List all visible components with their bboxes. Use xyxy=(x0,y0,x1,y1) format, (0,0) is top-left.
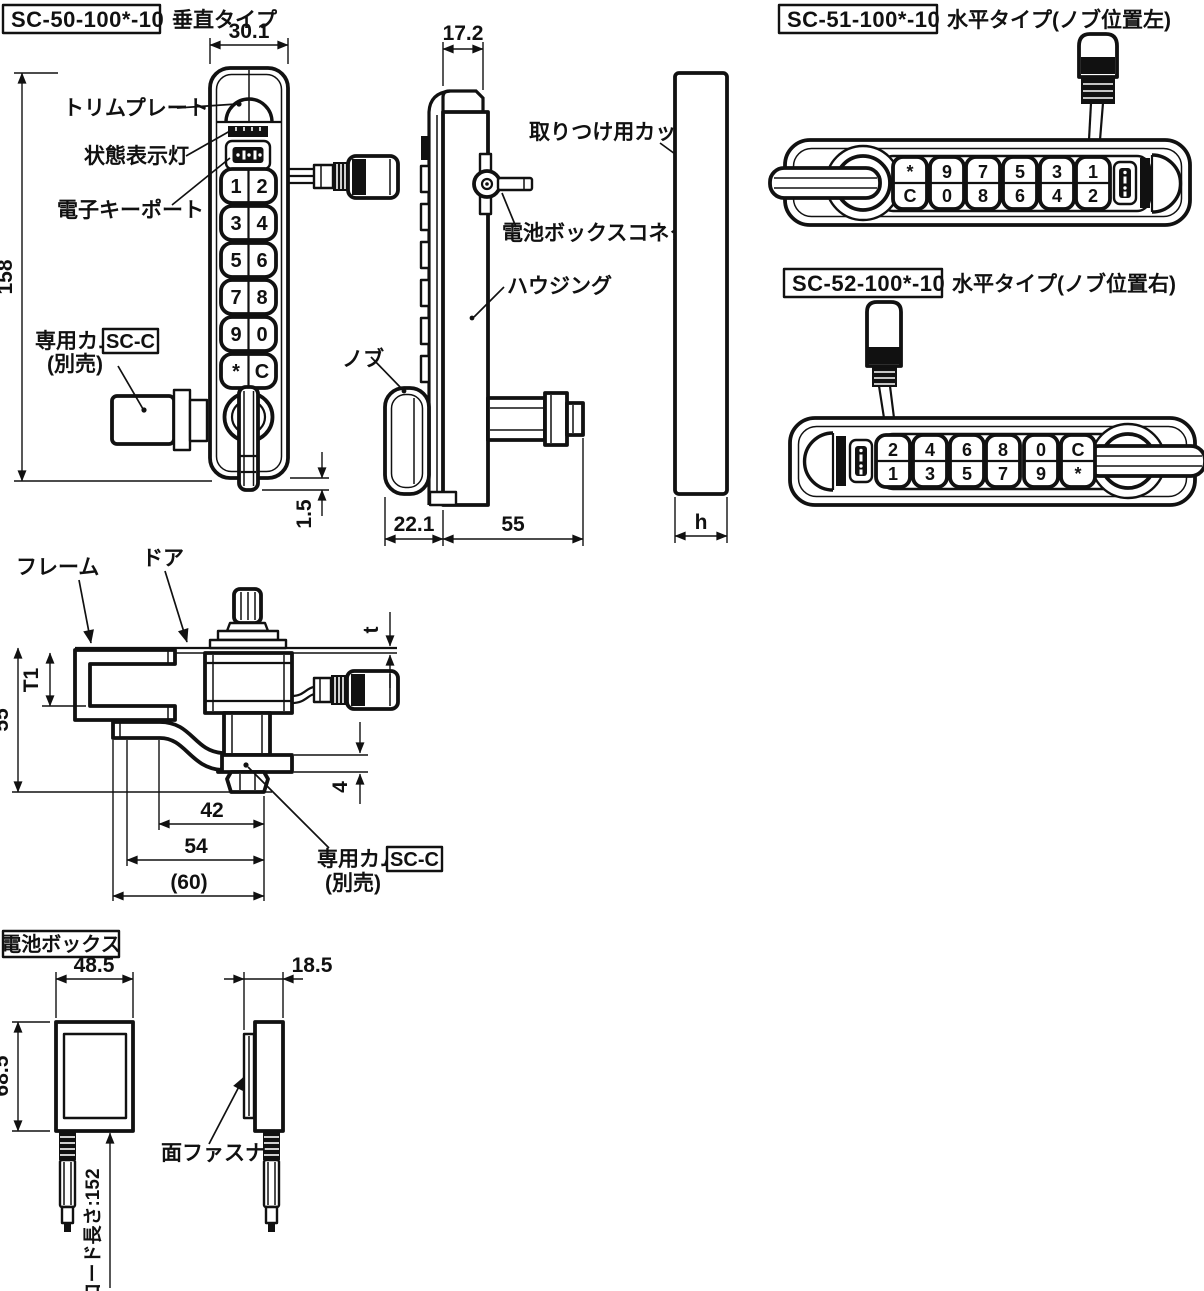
mounting-cup xyxy=(675,73,727,494)
svg-text:55: 55 xyxy=(0,708,13,732)
svg-text:*: * xyxy=(906,162,913,182)
view-sc52: SC-52-100*-10 水平タイプ(ノブ位置右) xyxy=(784,269,1204,505)
svg-text:8: 8 xyxy=(256,287,267,309)
svg-text:2: 2 xyxy=(256,176,267,198)
cam-strap xyxy=(113,722,222,770)
dimension-48-5: 48.5 xyxy=(56,954,133,1018)
view-battery-box: 電池ボックス 48.5 68.5 xyxy=(0,931,333,1291)
svg-text:電子キーポート: 電子キーポート xyxy=(57,198,204,222)
label-knob: ノブ xyxy=(342,347,406,393)
cable-sc52 xyxy=(867,302,901,418)
svg-text:9: 9 xyxy=(1036,464,1046,484)
status-indicator-strip xyxy=(228,126,268,137)
knob-side[interactable] xyxy=(385,388,429,494)
svg-text:C: C xyxy=(255,361,269,383)
key-button[interactable]: 4 3 xyxy=(913,435,947,487)
svg-text:1: 1 xyxy=(888,464,898,484)
key-button-row[interactable]: 1 2 xyxy=(221,169,276,203)
svg-text:ドア: ドア xyxy=(142,547,184,570)
svg-text:3: 3 xyxy=(925,464,935,484)
svg-text:トリムプレート: トリムプレート xyxy=(63,97,209,120)
svg-text:3: 3 xyxy=(230,213,241,235)
svg-text:h: h xyxy=(695,511,708,534)
type-label-sc51: 水平タイプ(ノブ位置左) xyxy=(947,8,1171,32)
key-button[interactable]: 0 9 xyxy=(1024,435,1058,487)
svg-text:8: 8 xyxy=(998,440,1008,460)
cable-connector-front xyxy=(288,156,398,198)
svg-text:2: 2 xyxy=(888,440,898,460)
cam-shaft-side xyxy=(488,393,583,445)
svg-text:ハウジング: ハウジング xyxy=(507,274,612,298)
keypad-vertical: 1 2 3 4 5 6 7 8 xyxy=(221,169,276,388)
svg-text:C: C xyxy=(1072,440,1085,460)
svg-text:1.5: 1.5 xyxy=(293,499,316,529)
svg-text:0: 0 xyxy=(942,186,952,206)
dimension-18-5: 18.5 xyxy=(224,954,333,1030)
keypad-sc52: 2 1 4 3 6 5 8 7 xyxy=(876,435,1095,487)
svg-text:(60): (60) xyxy=(170,871,207,894)
key-button[interactable]: 1 2 xyxy=(1076,157,1110,209)
svg-text:22.1: 22.1 xyxy=(394,513,435,536)
key-button[interactable]: C * xyxy=(1061,435,1095,487)
svg-text:0: 0 xyxy=(256,324,267,346)
svg-text:55: 55 xyxy=(501,513,525,536)
key-port-window xyxy=(226,141,270,169)
view-sc50-front: SC-50-100*-10 垂直タイプ 30.1 158 xyxy=(0,5,398,529)
svg-text:54: 54 xyxy=(184,835,208,858)
svg-text:158: 158 xyxy=(0,259,17,294)
svg-text:SC-C: SC-C xyxy=(106,331,155,353)
cam-plate xyxy=(218,755,292,772)
battery-side xyxy=(244,1022,283,1232)
svg-text:1: 1 xyxy=(1088,162,1098,182)
key-button-row[interactable]: * C xyxy=(221,354,276,388)
svg-text:(別売): (別売) xyxy=(47,353,103,376)
key-button[interactable]: 6 5 xyxy=(950,435,984,487)
model-number-sc50: SC-50-100*-10 xyxy=(11,7,164,32)
dimension-cord-152: コード長さ:152 xyxy=(77,1131,118,1291)
dimension-depth-17-2: 17.2 xyxy=(443,22,484,90)
svg-text:0: 0 xyxy=(1036,440,1046,460)
svg-text:5: 5 xyxy=(1015,162,1025,182)
key-button[interactable]: 8 7 xyxy=(986,435,1020,487)
label-housing: ハウジング xyxy=(470,274,612,320)
view-sc50-side: 17.2 xyxy=(342,22,711,546)
svg-text:面ファスナ: 面ファスナ xyxy=(161,1142,266,1165)
svg-text:2: 2 xyxy=(1088,186,1098,206)
key-button[interactable]: 9 0 xyxy=(930,157,964,209)
cam-part-front xyxy=(112,390,207,450)
dimension-4: 4 xyxy=(294,722,368,804)
battery-connector-side xyxy=(474,154,532,214)
svg-text:t: t xyxy=(360,627,383,634)
keypad-sc51: * C 9 0 7 8 5 6 xyxy=(893,157,1110,209)
cable-sc51 xyxy=(1079,34,1117,140)
lock-cross-section xyxy=(113,589,292,792)
model-number-sc51: SC-51-100*-10 xyxy=(787,7,940,32)
svg-text:4: 4 xyxy=(329,781,352,793)
svg-text:3: 3 xyxy=(1052,162,1062,182)
status-strip-sc51 xyxy=(1140,158,1150,208)
svg-text:17.2: 17.2 xyxy=(443,22,484,45)
svg-text:7: 7 xyxy=(230,287,241,309)
svg-text:18.5: 18.5 xyxy=(292,954,333,977)
svg-text:*: * xyxy=(232,361,240,383)
model-number-sc52: SC-52-100*-10 xyxy=(792,271,945,296)
svg-text:フレーム: フレーム xyxy=(16,556,99,579)
key-button[interactable]: 5 6 xyxy=(1003,157,1037,209)
key-button[interactable]: 3 4 xyxy=(1040,157,1074,209)
label-frame: フレーム xyxy=(16,556,99,643)
svg-text:1: 1 xyxy=(230,176,241,198)
svg-text:ノブ: ノブ xyxy=(342,347,384,371)
svg-text:8: 8 xyxy=(978,186,988,206)
key-button-row[interactable]: 7 8 xyxy=(221,280,276,314)
key-button-row[interactable]: 3 4 xyxy=(221,206,276,240)
svg-text:SC-C: SC-C xyxy=(390,849,439,871)
type-label-sc52: 水平タイプ(ノブ位置右) xyxy=(952,272,1176,296)
svg-text:9: 9 xyxy=(230,324,241,346)
svg-text:42: 42 xyxy=(200,799,223,822)
svg-text:30.1: 30.1 xyxy=(229,20,270,43)
key-button[interactable]: * C xyxy=(893,157,927,209)
technical-drawing-page: SC-50-100*-10 垂直タイプ 30.1 158 xyxy=(0,0,1204,1291)
frame-section xyxy=(75,650,175,720)
view-mounting-cup: h xyxy=(675,73,727,543)
svg-text:4: 4 xyxy=(256,213,268,235)
view-sc51: SC-51-100*-10 水平タイプ(ノブ位置左) xyxy=(770,5,1190,225)
status-strip-side xyxy=(421,136,429,160)
status-strip-sc52 xyxy=(836,436,846,486)
cable-cross-section xyxy=(292,671,398,709)
svg-text:6: 6 xyxy=(962,440,972,460)
label-mounting-cup: 取りつけ用カップ xyxy=(529,121,698,166)
svg-text:5: 5 xyxy=(962,464,972,484)
svg-text:9: 9 xyxy=(942,162,952,182)
svg-text:6: 6 xyxy=(1015,186,1025,206)
svg-text:68.5: 68.5 xyxy=(0,1055,13,1096)
svg-text:コード長さ:152: コード長さ:152 xyxy=(82,1168,104,1291)
svg-text:T1: T1 xyxy=(20,667,43,692)
svg-text:(別売): (別売) xyxy=(325,872,381,895)
svg-text:7: 7 xyxy=(998,464,1008,484)
svg-text:取りつけ用カップ: 取りつけ用カップ xyxy=(529,121,698,144)
drawing-svg: SC-50-100*-10 垂直タイプ 30.1 158 xyxy=(0,0,1204,1291)
dimension-68-5: 68.5 xyxy=(0,1022,50,1131)
svg-text:状態表示灯: 状態表示灯 xyxy=(84,144,189,168)
battery-title: 電池ボックス xyxy=(1,933,120,956)
svg-text:5: 5 xyxy=(230,250,241,272)
key-button[interactable]: 2 1 xyxy=(876,435,910,487)
svg-text:4: 4 xyxy=(925,440,935,460)
key-button[interactable]: 7 8 xyxy=(966,157,1000,209)
svg-text:6: 6 xyxy=(256,250,267,272)
housing-side xyxy=(421,91,488,505)
svg-text:*: * xyxy=(1074,464,1081,484)
key-button-row[interactable]: 9 0 xyxy=(221,317,276,351)
dimension-cup-h: h xyxy=(675,497,727,543)
svg-text:7: 7 xyxy=(978,162,988,182)
svg-text:4: 4 xyxy=(1052,186,1062,206)
svg-text:C: C xyxy=(904,186,917,206)
view-installation: フレーム ドア xyxy=(0,547,442,901)
label-door: ドア xyxy=(142,547,187,642)
svg-text:48.5: 48.5 xyxy=(74,954,115,977)
key-button-row[interactable]: 5 6 xyxy=(221,243,276,277)
